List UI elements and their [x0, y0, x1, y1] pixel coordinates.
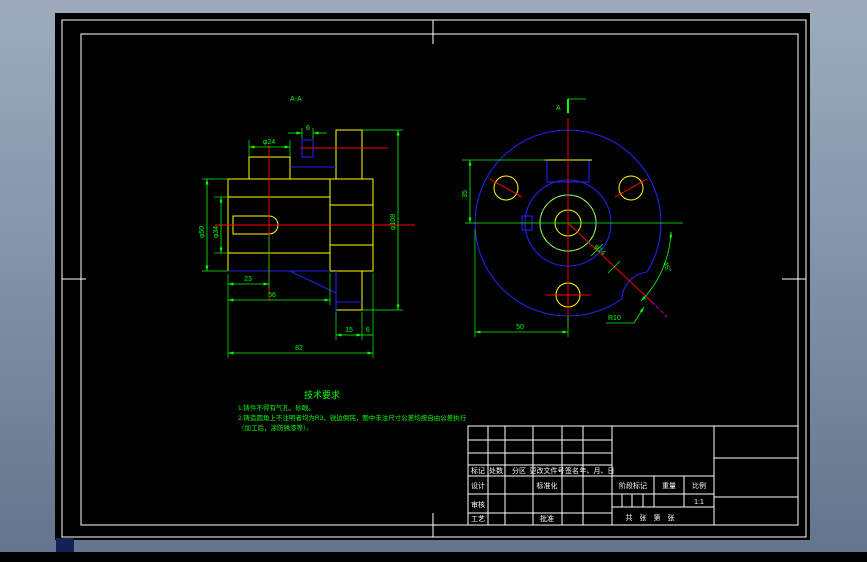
- outer-border: [62, 20, 806, 537]
- hub-lower-wall: [228, 253, 330, 271]
- section-view: A-A φ24: [199, 96, 415, 358]
- tech-note-line2: 2.铸造圆角上不注明者均为R3，锐边倒钝，图中未注尺寸公差均按自由公差执行: [238, 413, 467, 422]
- tb-review: 审核: [471, 500, 485, 509]
- inner-border: [81, 34, 798, 525]
- tb-approve: 批准: [540, 514, 554, 523]
- dim-boss: φ24: [263, 139, 275, 146]
- section-title: A-A: [290, 96, 302, 103]
- tb-process: 工艺: [471, 515, 485, 523]
- tb-stage: 阶段标记: [619, 481, 647, 490]
- cad-application-window: A-A φ24: [0, 0, 867, 562]
- tb-docno: 更改文件号: [530, 466, 565, 475]
- flange-rim-lower: [336, 271, 362, 310]
- section-marker: A: [556, 105, 561, 112]
- tb-design: 设计: [471, 481, 485, 490]
- flange-rim-upper: [336, 130, 362, 179]
- tech-notes: 技术要求 1.铸件不得有气孔、砂眼。 2.铸造圆角上不注明者均为R3，锐边倒钝，…: [238, 389, 467, 432]
- tb-date: 年、月、日: [580, 466, 615, 475]
- tb-sheet: 共 张 第 张: [626, 513, 675, 522]
- dim-notch: R10: [608, 315, 621, 322]
- tb-weight: 重量: [662, 482, 676, 490]
- tb-scale-value: 1:1: [694, 499, 704, 506]
- cad-drawing: A-A φ24: [0, 0, 867, 562]
- dim-56: 56: [268, 292, 276, 299]
- flange-web-lower: [330, 245, 373, 271]
- dim-15: 15: [345, 327, 353, 334]
- tech-note-line3: （加工后，涂防锈漆等）。: [238, 423, 313, 432]
- dim-23: 23: [244, 276, 252, 283]
- dim-angle: 45°: [661, 261, 673, 274]
- dim-offset: 35: [462, 190, 469, 198]
- dim-hub: φ50: [199, 226, 206, 238]
- tb-sign: 签名: [565, 466, 579, 475]
- dim-6b: 6: [366, 327, 370, 334]
- dim-key: 6: [306, 125, 310, 132]
- flange-web-upper: [330, 179, 373, 205]
- chamfer-line: [290, 271, 336, 293]
- dim-bore: φ34: [213, 226, 220, 238]
- tech-notes-title: 技术要求: [304, 389, 340, 400]
- drawing-frame: [62, 20, 806, 537]
- tb-count: 处数: [489, 466, 503, 475]
- dim-od: φ108: [390, 214, 397, 230]
- tech-note-line1: 1.铸件不得有气孔、砂眼。: [238, 403, 315, 412]
- hub-upper-wall: [228, 179, 330, 197]
- diagonal-centerline: [568, 223, 652, 302]
- tb-standard: 标准化: [537, 481, 558, 490]
- dim-50: 50: [516, 324, 524, 331]
- key-section: [302, 140, 313, 157]
- boss-section: [249, 157, 290, 179]
- dim-82: 82: [295, 345, 303, 352]
- tb-mark: 标记: [471, 466, 485, 475]
- title-block: 标记 处数 分区 更改文件号 签名 年、月、日 设计 标准化 审核 工艺 批准 …: [468, 426, 798, 525]
- tb-scale: 比例: [692, 481, 706, 490]
- front-view: A 35 50 45° R10 φ14: [462, 99, 683, 337]
- tb-zone: 分区: [512, 466, 526, 475]
